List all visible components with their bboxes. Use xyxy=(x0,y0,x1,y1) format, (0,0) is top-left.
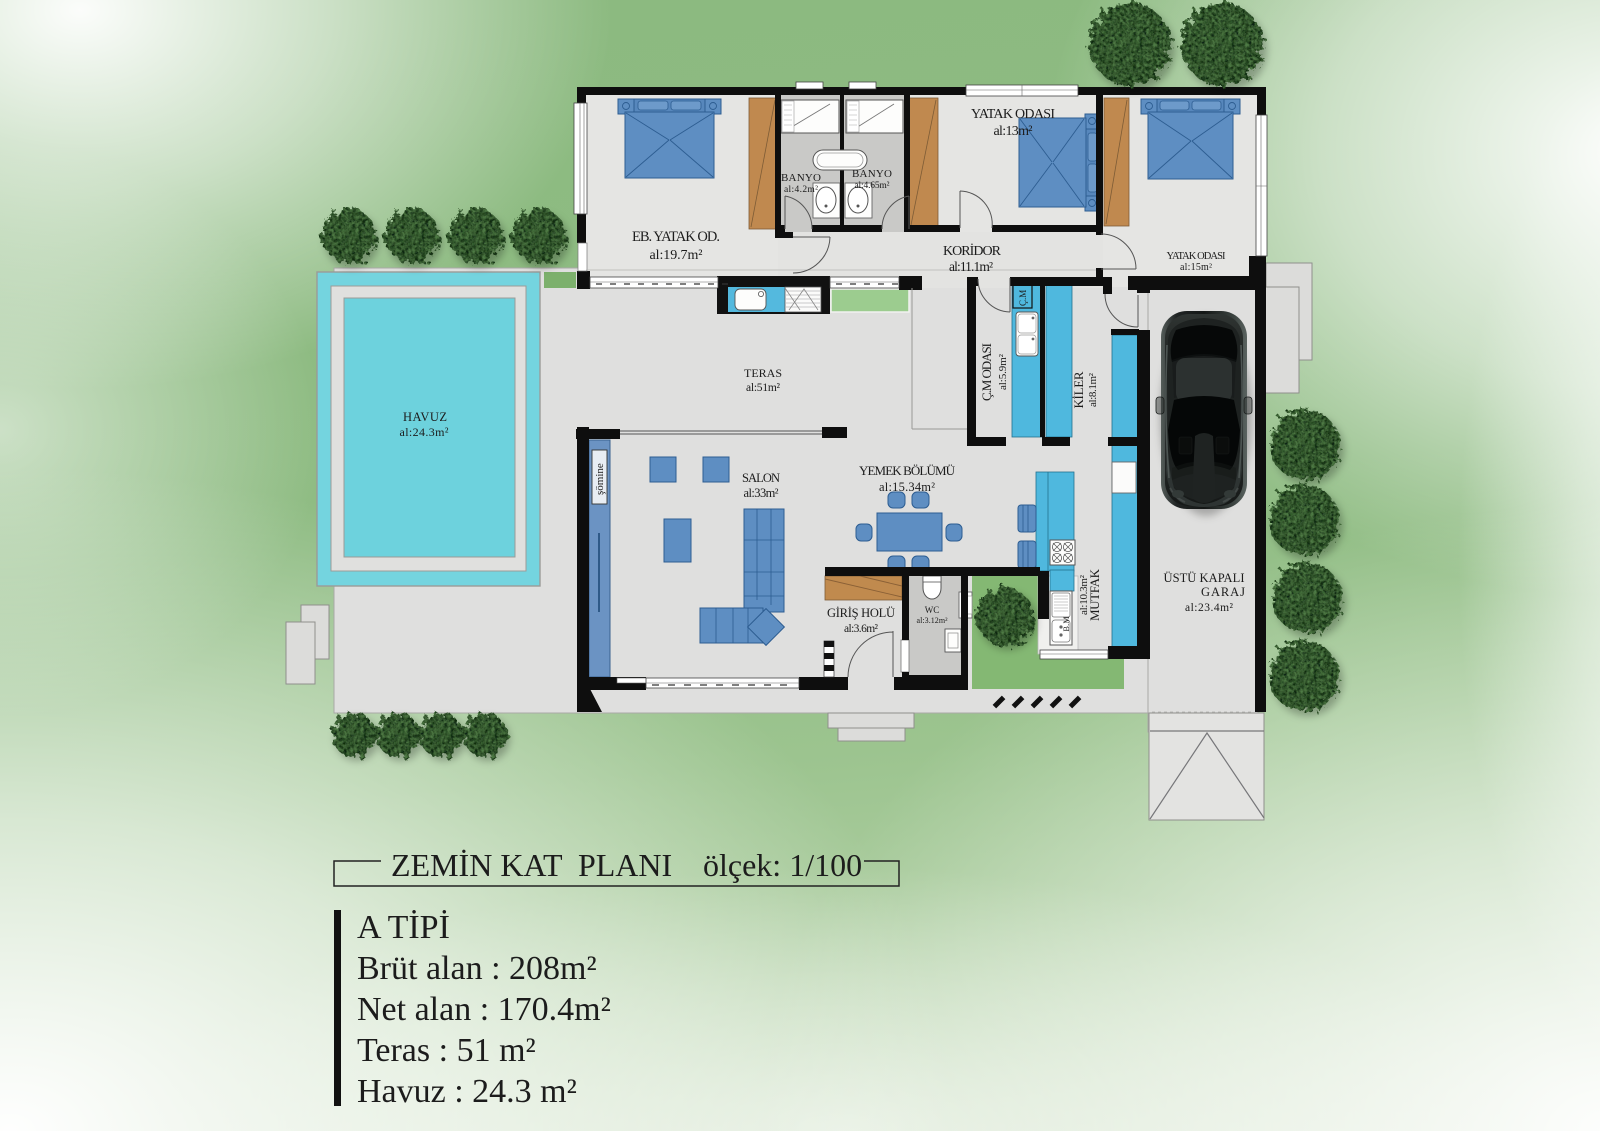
svg-text:al:51m²: al:51m² xyxy=(746,382,781,394)
svg-text:BANYO: BANYO xyxy=(781,172,821,184)
svg-text:al:4.2m²: al:4.2m² xyxy=(784,185,818,195)
svg-text:al:5.9m²: al:5.9m² xyxy=(997,353,1009,390)
svg-text:al:15m²: al:15m² xyxy=(1180,262,1212,273)
svg-text:al:23.4m²: al:23.4m² xyxy=(1185,602,1234,614)
svg-text:Ç.M: Ç.M xyxy=(1018,290,1028,306)
svg-text:al:15.34m²: al:15.34m² xyxy=(879,480,935,494)
svg-text:GARAJ: GARAJ xyxy=(1201,585,1245,599)
svg-text:şömine: şömine xyxy=(594,463,606,495)
svg-text:al:11.1m²: al:11.1m² xyxy=(949,259,993,274)
svg-text:WC: WC xyxy=(925,605,940,615)
svg-text:KİLER: KİLER xyxy=(1071,371,1086,408)
svg-text:A TİPİ: A TİPİ xyxy=(357,909,450,946)
svg-text:ZEMİN KAT PLANI: ZEMİN KAT PLANI xyxy=(391,847,672,883)
svg-text:Ç.M ODASI: Ç.M ODASI xyxy=(979,343,994,401)
svg-text:al:4.65m²: al:4.65m² xyxy=(855,181,890,191)
svg-text:al:24.3m²: al:24.3m² xyxy=(400,425,449,439)
svg-text:ÜSTÜ KAPALI: ÜSTÜ KAPALI xyxy=(1164,571,1245,585)
svg-text:ölçek: 1/100: ölçek: 1/100 xyxy=(703,847,862,883)
svg-text:al:3.12m²: al:3.12m² xyxy=(917,616,949,625)
svg-text:SALON: SALON xyxy=(742,471,780,485)
svg-text:al:3.6m²: al:3.6m² xyxy=(844,623,879,635)
svg-text:YATAK ODASI: YATAK ODASI xyxy=(1167,251,1227,262)
svg-text:YATAK ODASI: YATAK ODASI xyxy=(971,107,1055,122)
svg-text:KORİDOR: KORİDOR xyxy=(943,243,1002,259)
svg-text:HAVUZ: HAVUZ xyxy=(403,410,447,424)
svg-text:al:10.3m²: al:10.3m² xyxy=(1078,574,1090,615)
svg-text:TERAS: TERAS xyxy=(744,366,782,380)
svg-text:B.M: B.M xyxy=(1062,617,1071,632)
svg-text:Brüt alan : 208m²: Brüt alan : 208m² xyxy=(357,950,597,987)
svg-text:al:13m²: al:13m² xyxy=(994,124,1033,139)
svg-text:al:8.1m²: al:8.1m² xyxy=(1087,372,1099,407)
svg-text:Teras : 51 m²: Teras : 51 m² xyxy=(357,1032,536,1069)
svg-text:Havuz : 24.3 m²: Havuz : 24.3 m² xyxy=(357,1073,577,1110)
svg-text:GİRİŞ HOLÜ: GİRİŞ HOLÜ xyxy=(827,606,895,620)
svg-text:Net alan : 170.4m²: Net alan : 170.4m² xyxy=(357,991,611,1028)
svg-text:YEMEK BÖLÜMÜ: YEMEK BÖLÜMÜ xyxy=(859,463,956,478)
svg-text:al:19.7m²: al:19.7m² xyxy=(650,248,703,263)
svg-text:EB. YATAK OD.: EB. YATAK OD. xyxy=(632,229,720,245)
svg-text:BANYO: BANYO xyxy=(852,168,892,180)
svg-text:al:33m²: al:33m² xyxy=(744,486,779,500)
